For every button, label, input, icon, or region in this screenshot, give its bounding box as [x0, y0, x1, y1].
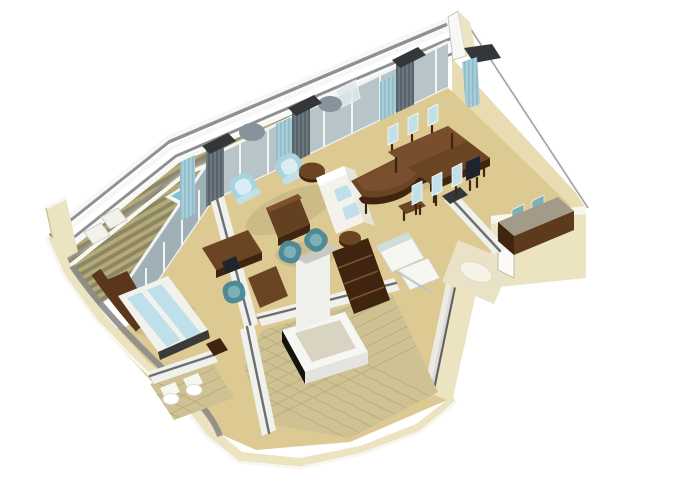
- floorplan-svg: Isometric 3D cutaway floor plan of a sui…: [0, 0, 680, 484]
- floorplan-render: Isometric 3D cutaway floor plan of a sui…: [0, 0, 680, 484]
- round-stool: [339, 231, 361, 248]
